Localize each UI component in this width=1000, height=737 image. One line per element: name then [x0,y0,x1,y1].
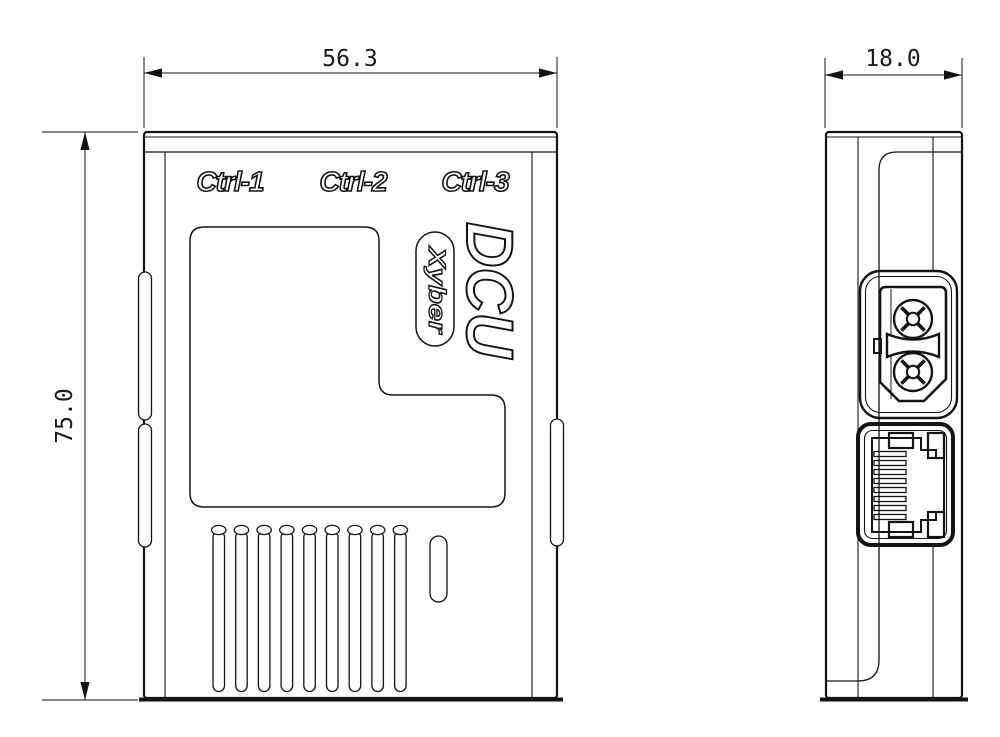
dim-width-arrow-right [539,68,557,77]
dim-depth-arrow-right [944,70,962,79]
dim-height-value: 75.0 [52,388,78,443]
dim-depth-value: 18.0 [865,46,920,72]
front-view: Ctrl-1 Ctrl-2 Ctrl-3 DCU Xyber [139,132,564,700]
port-label-ctrl1: Ctrl-1 [196,166,264,197]
brand-logo: Xyber [423,244,450,335]
dim-depth-arrow-left [825,70,843,79]
vent-slot-cap [325,525,339,534]
vent-slot-cap [348,525,362,534]
dim-height: 75.0 [42,132,138,700]
side-view [820,132,968,700]
drawing-canvas: 56.3 75.0 18.0 Ctrl-1 Ctrl-2 Ctrl-3 DC [0,0,1000,737]
vent-slot-cap [280,525,294,534]
dim-height-arrow-bottom [80,682,89,700]
vent-slot-cap [234,525,248,534]
vent-slot-cap [257,525,271,534]
vent-slot-cap [370,525,384,534]
dim-height-arrow-top [80,132,89,150]
dimension-drawing: 56.3 75.0 18.0 Ctrl-1 Ctrl-2 Ctrl-3 DC [0,0,1000,737]
dim-depth: 18.0 [825,46,962,128]
left-tab-upper [139,272,152,420]
front-body-outline [144,132,557,698]
right-tab [551,419,564,546]
product-logo: DCU [453,222,527,360]
dim-width-value: 56.3 [322,46,377,72]
port-label-ctrl3: Ctrl-3 [441,166,510,197]
dim-width: 56.3 [144,46,557,128]
dim-width-arrow-left [144,68,162,77]
left-tab-lower [139,424,152,547]
vent-slot-cap [212,525,226,534]
vent-slot-cap [302,525,316,534]
side-body-outline [826,132,962,698]
port-label-ctrl2: Ctrl-2 [319,166,388,197]
vent-slot-cap [393,525,407,534]
